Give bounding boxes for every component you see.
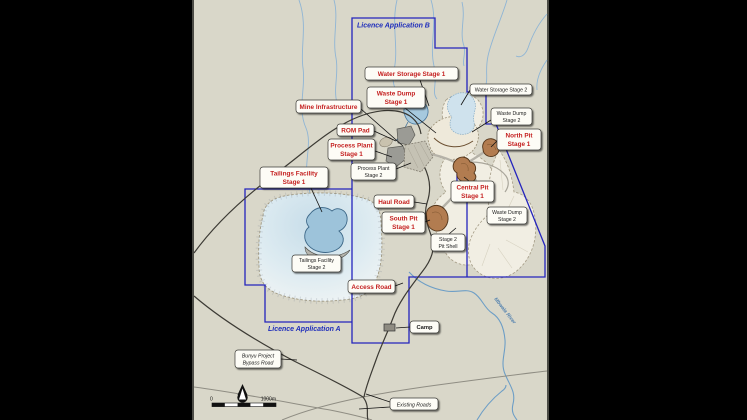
label-tailings-facility-stage-2-l1: Tailings Facility [299, 258, 334, 264]
screenshot-stage: Water Storage Stage 1 Waste Dump Stage 1… [0, 0, 747, 420]
label-existing-roads: Existing Roads [397, 402, 432, 408]
label-process-plant-stage-1-l2: Stage 1 [340, 151, 363, 158]
callout-tailings-facility-stage-2: Tailings Facility Stage 2 [292, 255, 341, 272]
label-rom-pad: ROM Pad [341, 127, 370, 134]
label-bypass-road-l1: Bunyu Project [242, 353, 275, 359]
callout-central-pit-stage-1: Central Pit Stage 1 [451, 177, 494, 202]
scale-zero-label: 0 [210, 397, 213, 403]
label-waste-dump-stage-2-north-l2: Stage 2 [503, 118, 521, 124]
label-waste-dump-stage-2-north-l1: Waste Dump [497, 111, 527, 117]
label-waste-dump-stage-2-l1: Waste Dump [492, 210, 522, 216]
camp-symbol [384, 324, 395, 331]
south-pit-area [426, 205, 448, 231]
label-water-storage-stage-2: Water Storage Stage 2 [475, 88, 528, 94]
label-tailings-facility-stage-1-l2: Stage 1 [283, 179, 306, 186]
label-tailings-facility-stage-1-l1: Tailings Facility [270, 171, 318, 178]
licence-application-b-label: Licence Application B [357, 23, 430, 30]
water-storage-stage-2-pond [447, 93, 475, 135]
scale-max-label: 1000m [261, 397, 276, 403]
label-south-pit-stage-1-l2: Stage 1 [392, 224, 415, 231]
label-camp: Camp [416, 325, 433, 331]
callout-waste-dump-stage-2: Waste Dump Stage 2 [487, 207, 527, 224]
site-map: Water Storage Stage 1 Waste Dump Stage 1… [0, 0, 747, 420]
label-waste-dump-stage-2-l2: Stage 2 [498, 217, 516, 223]
callout-south-pit-stage-1: South Pit Stage 1 [382, 212, 430, 233]
label-bypass-road-l2: Bypass Road [243, 361, 275, 367]
label-stage-2-pit-shell-l1: Stage 2 [439, 237, 457, 243]
label-tailings-facility-stage-2-l2: Stage 2 [308, 265, 326, 271]
label-waste-dump-stage-1-l2: Stage 1 [385, 99, 408, 106]
label-access-road: Access Road [351, 284, 391, 291]
tailings-facility-stage-1-area [305, 208, 347, 253]
label-process-plant-stage-2-l1: Process Plant [357, 166, 390, 172]
label-mine-infrastructure: Mine Infrastructure [300, 104, 358, 111]
callout-north-pit-stage-1: North Pit Stage 1 [491, 129, 541, 150]
label-central-pit-stage-1-l2: Stage 1 [461, 193, 484, 200]
label-north-pit-stage-1-l2: Stage 1 [508, 141, 531, 148]
label-stage-2-pit-shell-l2: Pit Shell [438, 244, 457, 250]
label-haul-road: Haul Road [378, 199, 410, 206]
label-north-pit-stage-1-l1: North Pit [506, 133, 534, 140]
label-central-pit-stage-1-l1: Central Pit [457, 185, 490, 192]
label-water-storage-stage-1: Water Storage Stage 1 [378, 71, 446, 78]
licence-application-a-label: Licence Application A [268, 326, 341, 333]
label-process-plant-stage-2-l2: Stage 2 [365, 173, 383, 179]
label-waste-dump-stage-1-l1: Waste Dump [377, 91, 416, 98]
label-process-plant-stage-1-l1: Process Plant [330, 143, 373, 150]
callout-access-road: Access Road [348, 280, 403, 293]
label-south-pit-stage-1-l1: South Pit [389, 216, 418, 223]
